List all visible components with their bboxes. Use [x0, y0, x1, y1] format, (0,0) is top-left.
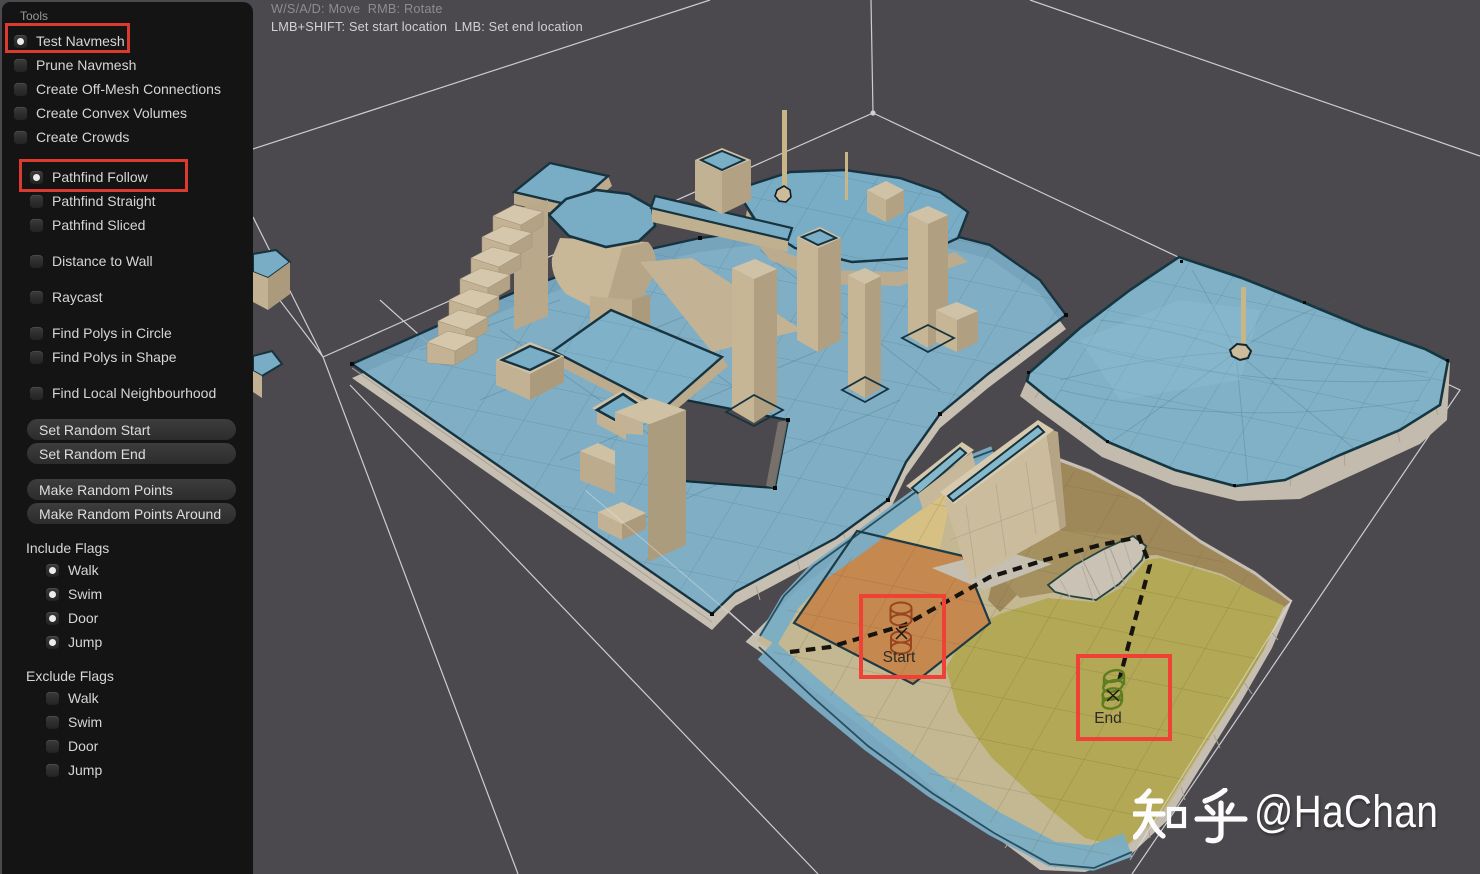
- svg-text:Start: Start: [883, 649, 916, 666]
- svg-text:End: End: [1094, 710, 1122, 727]
